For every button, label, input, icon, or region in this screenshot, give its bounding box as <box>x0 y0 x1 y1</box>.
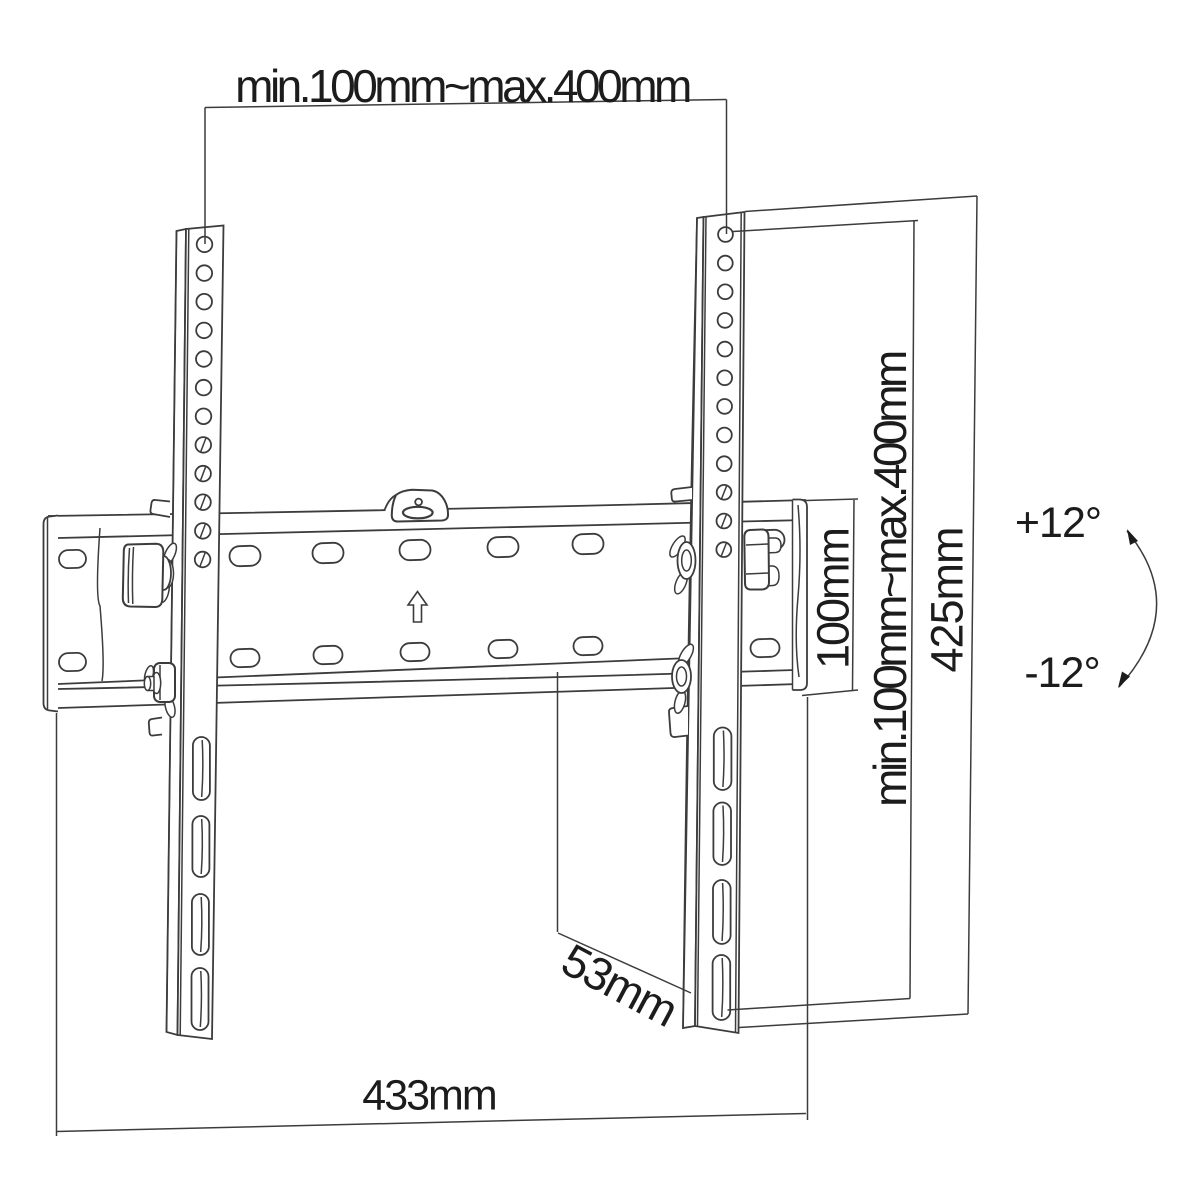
svg-text:100mm: 100mm <box>808 529 859 669</box>
svg-text:min.100mm~max.400mm: min.100mm~max.400mm <box>235 60 690 112</box>
svg-text:425mm: 425mm <box>922 527 973 672</box>
svg-text:+12°: +12° <box>1015 499 1101 547</box>
svg-text:min.100mm~max.400mm: min.100mm~max.400mm <box>864 352 916 807</box>
svg-text:433mm: 433mm <box>362 1072 495 1120</box>
svg-text:-12°: -12° <box>1024 649 1099 697</box>
